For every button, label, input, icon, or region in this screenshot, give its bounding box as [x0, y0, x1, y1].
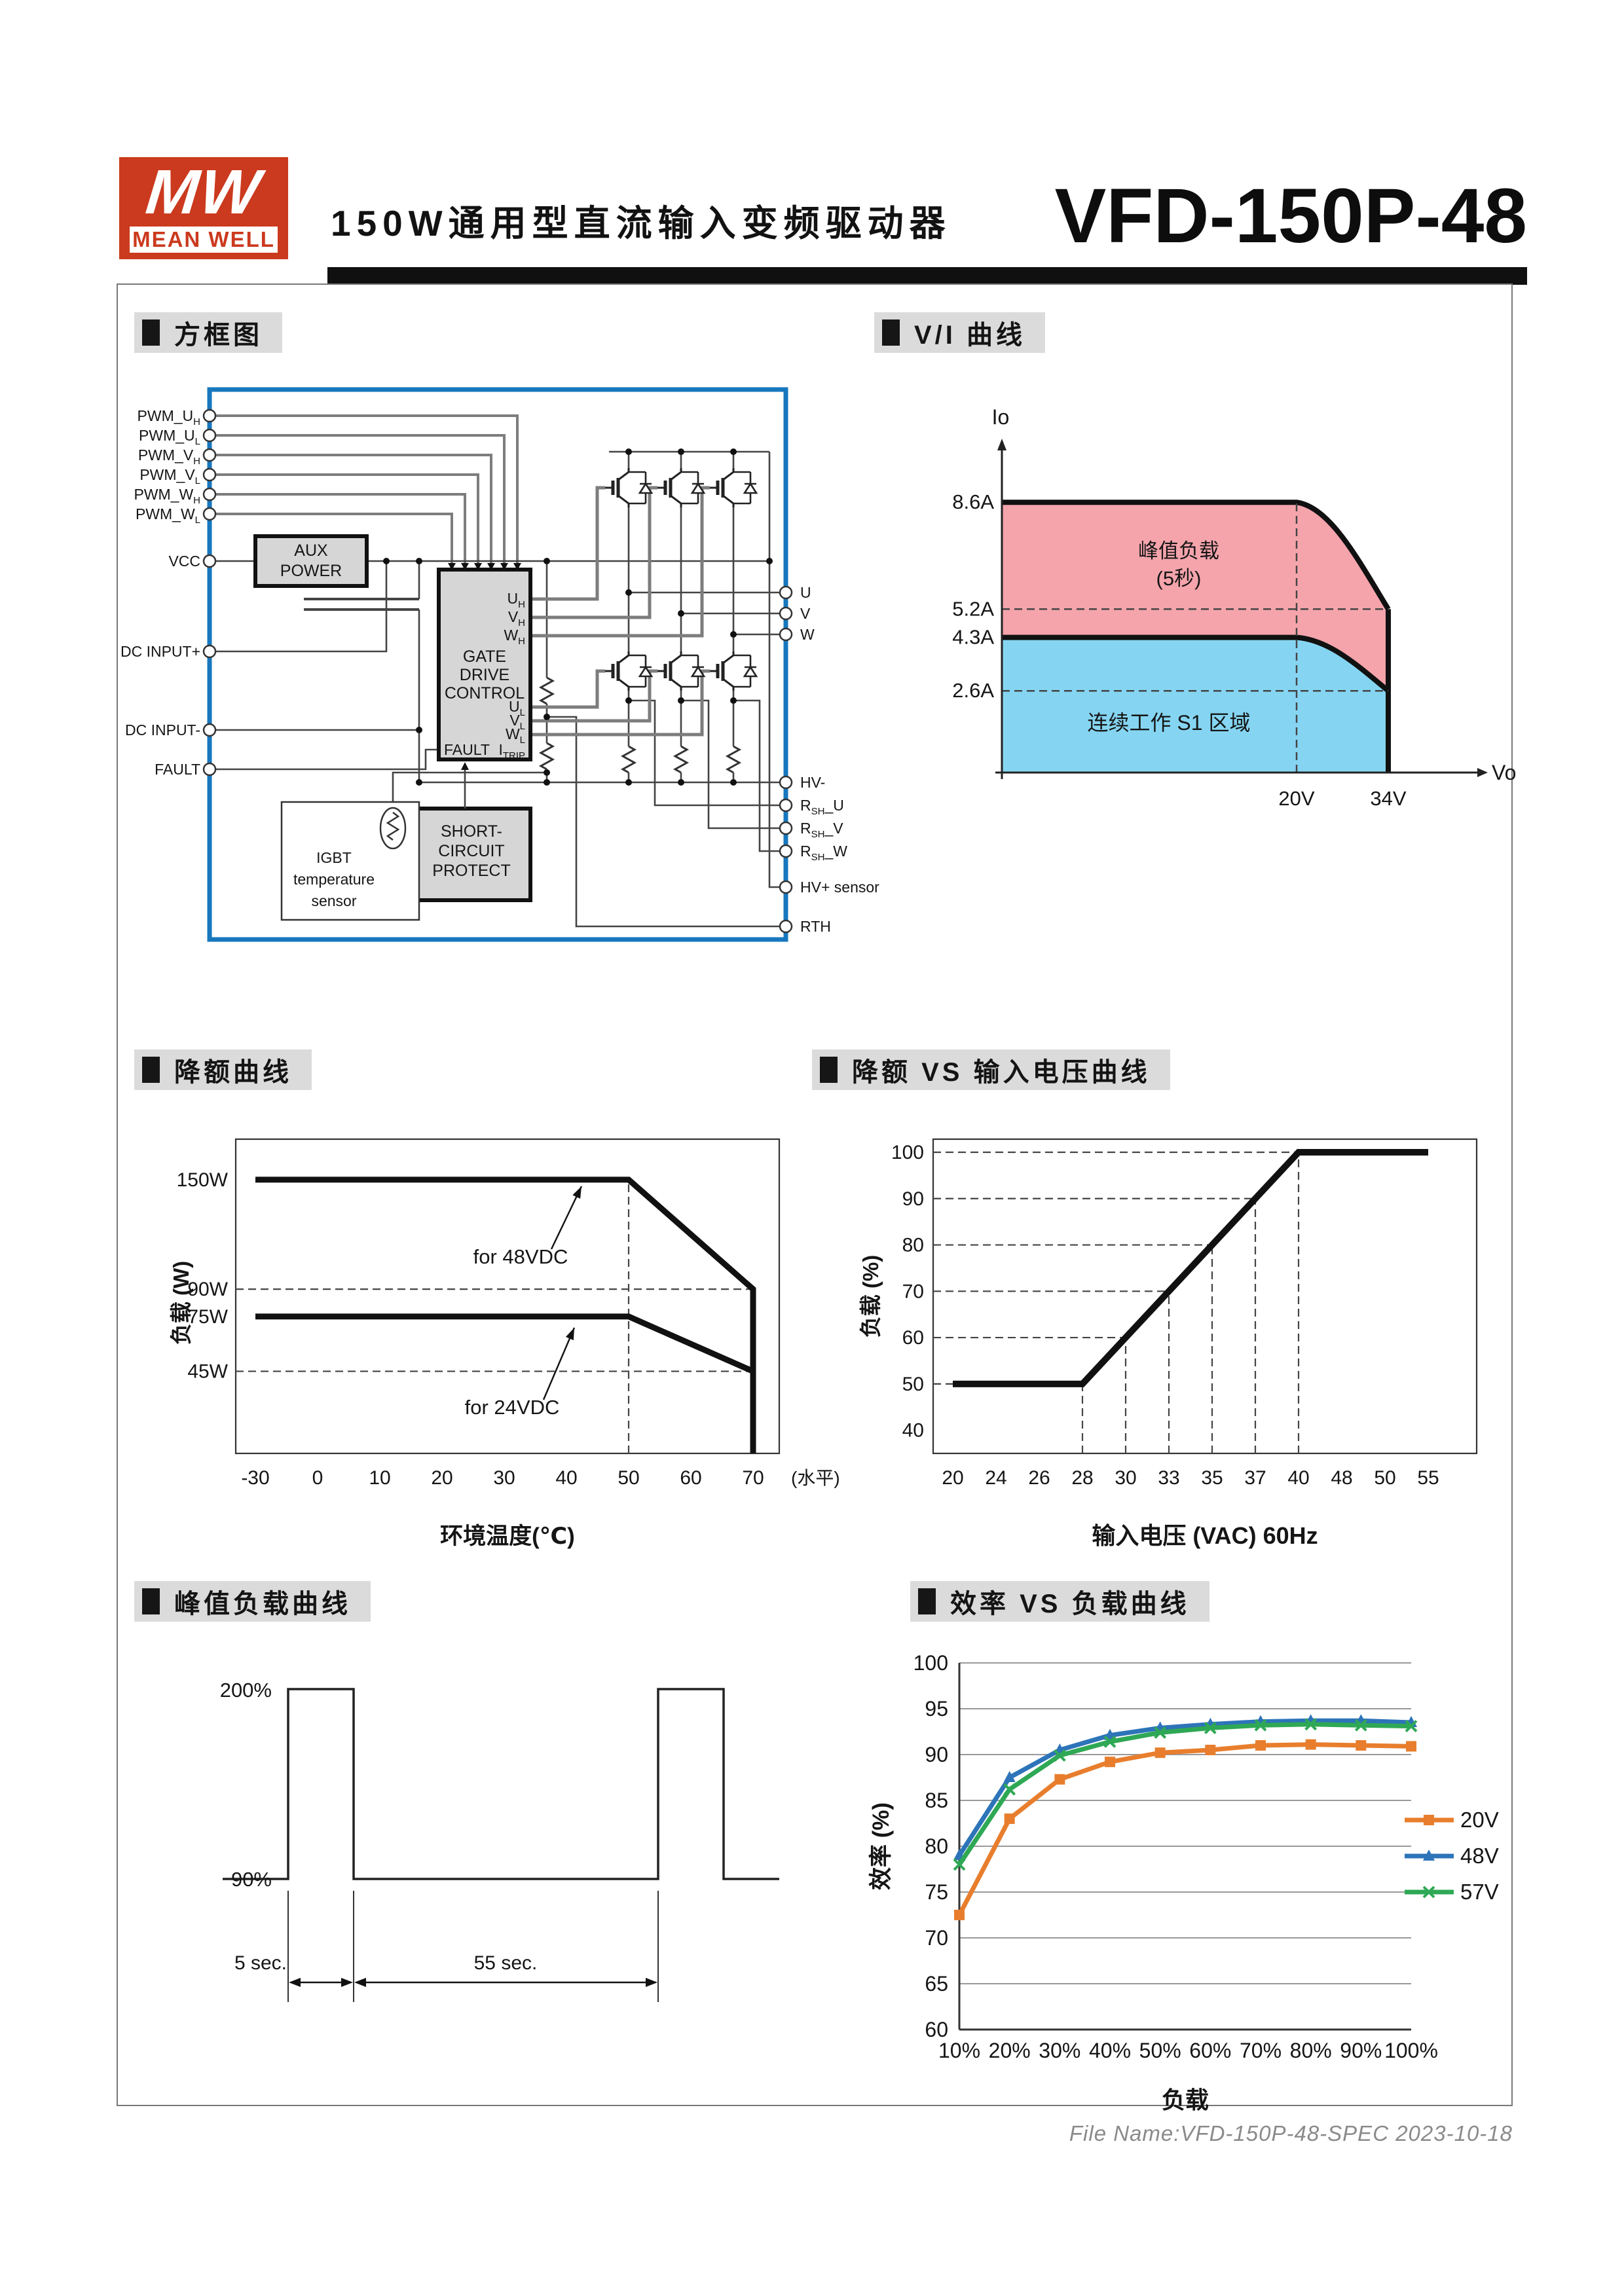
legend-label: 48V — [1460, 1844, 1499, 1868]
marker-square — [954, 1910, 965, 1920]
x-tick-label: -30 — [241, 1467, 269, 1489]
y-tick-label: 80 — [902, 1235, 924, 1256]
section-header-peak-load: 峰值负载曲线 — [134, 1581, 371, 1622]
section-header-vi-curve: V/I 曲线 — [874, 312, 1045, 353]
dimension-arrowhead — [646, 1978, 657, 1987]
series-annotation: for 24VDC — [465, 1396, 560, 1419]
x-tick-label: 33 — [1158, 1467, 1179, 1489]
section-title: 降额 VS 输入电压曲线 — [852, 1051, 1151, 1089]
pin-rsh-u: RSH_U — [800, 797, 844, 817]
y-tick-label: 75 — [925, 1880, 948, 1904]
gate-label: DRIVE — [460, 666, 509, 684]
temp-label: sensor — [311, 892, 356, 909]
x-tick-label: 60 — [680, 1467, 701, 1489]
series-line-48V — [959, 1721, 1411, 1855]
y-tick-label: 70 — [925, 1926, 948, 1950]
peak-load-chart: 200%90%5 sec.55 sec. — [151, 1637, 805, 2069]
x-tick-label: 10 — [369, 1467, 390, 1489]
x-tick-label: 20 — [431, 1467, 452, 1489]
y-tick-label: 80 — [925, 1834, 948, 1858]
marker-square — [1005, 1813, 1015, 1824]
logo-text: MEAN WELL — [132, 227, 275, 252]
annotation-arrowhead — [566, 1328, 574, 1340]
y-axis-title: 负载 (%) — [858, 1255, 883, 1338]
x-tick-label: 30 — [493, 1467, 515, 1489]
section-header-efficiency: 效率 VS 负载曲线 — [910, 1581, 1209, 1622]
shunt-resistor-w — [728, 746, 739, 773]
section-square-icon — [918, 1588, 936, 1614]
y-tick-label: 5.2A — [952, 597, 994, 620]
section-title: 降额曲线 — [174, 1051, 292, 1089]
x-axis-title: 输入电压 (VAC) 60Hz — [1092, 1522, 1318, 1549]
x-tick-label: 50% — [1139, 2039, 1181, 2062]
divider-resistor-2 — [541, 743, 553, 769]
marker-square — [1406, 1741, 1416, 1751]
gate-pin-fault: FAULT — [444, 741, 490, 758]
x-axis-title: 环境温度(℃) — [440, 1523, 575, 1549]
pin-pwm-vl: PWM_VL — [139, 466, 200, 486]
pin-w: W — [800, 626, 815, 643]
y-tick-label: 4.3A — [952, 626, 994, 649]
x-tick-label: 55 — [1417, 1467, 1439, 1489]
page-title: 150W通用型直流输入变频驱动器 — [331, 194, 951, 246]
x-tick-label: 37 — [1244, 1467, 1266, 1489]
gate-label: GATE — [463, 647, 506, 666]
rest-duration-label: 55 sec. — [474, 1952, 538, 1974]
x-axis-arrowhead — [1477, 768, 1488, 777]
pin-pwm-ul: PWM_UL — [139, 427, 200, 447]
legend-label: 57V — [1460, 1880, 1499, 1904]
x-tick-label: 40 — [555, 1467, 577, 1489]
x-tick-label: 35 — [1201, 1467, 1223, 1489]
legend-label: 20V — [1460, 1808, 1499, 1832]
section-square-icon — [820, 1057, 838, 1083]
annotation-arrowhead — [572, 1186, 581, 1199]
y-axis-title: 负载 (W) — [169, 1261, 193, 1345]
x-tick-label: 30 — [1115, 1467, 1136, 1489]
series-line-1 — [255, 1317, 753, 1372]
y-tick-label: 60 — [902, 1327, 924, 1349]
datasheet-page: MW MEAN WELL 150W通用型直流输入变频驱动器 VFD-150P-4… — [0, 0, 1624, 2296]
plot-border — [933, 1139, 1477, 1453]
marker-square — [1356, 1740, 1366, 1751]
pin-hv-minus: HV- — [800, 774, 825, 791]
section-square-icon — [142, 319, 160, 346]
x-tick-label: 70% — [1240, 2039, 1282, 2062]
x-tick-label: 50 — [1374, 1467, 1395, 1489]
x-tick-label: 20% — [989, 2039, 1031, 2062]
marker-square — [1155, 1747, 1166, 1758]
igbt-v-low — [657, 651, 704, 691]
y-tick-label: 70 — [902, 1281, 924, 1302]
meanwell-logo: MW MEAN WELL — [119, 157, 288, 259]
x-tick-label: 90% — [1340, 2039, 1382, 2062]
section-title: V/I 曲线 — [914, 314, 1025, 352]
x-axis-title: Vo — [1492, 761, 1516, 784]
x-tick-label: 0 — [312, 1467, 323, 1489]
model-number: VFD-150P-48 — [1055, 172, 1527, 261]
pin-fault: FAULT — [155, 761, 200, 778]
section-square-icon — [882, 319, 900, 346]
pin-pwm-wh: PWM_WH — [134, 486, 200, 506]
x-tick-label: 26 — [1028, 1467, 1050, 1489]
y-tick-label: 95 — [925, 1697, 948, 1721]
igbt-u-high — [605, 468, 652, 507]
pin-rsh-v: RSH_V — [800, 820, 843, 840]
section-header-derating: 降额曲线 — [134, 1049, 312, 1090]
pulse-duration-label: 5 sec. — [234, 1952, 287, 1974]
igbt-w-high — [710, 468, 756, 507]
pin-rsh-w: RSH_W — [800, 843, 847, 863]
x-axis-title: 负载 — [1162, 2086, 1209, 2113]
y-tick-label: 50 — [902, 1374, 924, 1395]
dimension-arrowhead — [289, 1978, 301, 1987]
pin-rth: RTH — [800, 918, 831, 935]
aux-label: AUX — [294, 541, 328, 560]
pin-dc-input-minus: DC INPUT- — [125, 721, 200, 738]
high-level-label: 200% — [220, 1679, 272, 1702]
mw-logo-icon: MW — [116, 158, 292, 227]
y-tick-label: 150W — [177, 1169, 229, 1191]
igbt-v-high — [657, 468, 704, 507]
igbt-u-low — [605, 651, 652, 691]
y-tick-label: 40 — [902, 1420, 924, 1442]
region-label: 峰值负载 — [1138, 539, 1219, 562]
x-tick-label: 50 — [618, 1467, 639, 1489]
x-axis-suffix: (水平) — [791, 1468, 840, 1488]
low-level-label: 90% — [231, 1868, 272, 1891]
divider-resistor-1 — [541, 678, 553, 704]
section-title: 方框图 — [174, 314, 263, 352]
y-tick-label: 45W — [187, 1361, 228, 1383]
y-axis-title: 效率 (%) — [868, 1802, 894, 1890]
derating-vs-input-chart: 405060708090100202426283033353740485055负… — [841, 1106, 1509, 1584]
x-tick-label: 40 — [1287, 1467, 1309, 1489]
efficiency-chart: 100959085807570656010%20%30%40%50%60%70%… — [841, 1624, 1509, 2128]
igbt-w-low — [710, 651, 756, 691]
pin-pwm-vh: PWM_VH — [138, 446, 200, 467]
header-divider-bar — [327, 267, 1527, 285]
shunt-resistor-v — [675, 746, 687, 773]
dimension-arrowhead — [354, 1978, 366, 1987]
marker-square — [1424, 1815, 1434, 1825]
y-tick-label: 2.6A — [952, 679, 994, 702]
pin-u: U — [800, 584, 811, 601]
pin-pwm-wl: PWM_WL — [136, 505, 200, 526]
section-square-icon — [142, 1057, 160, 1083]
y-tick-label: 85 — [925, 1789, 948, 1812]
scp-label: PROTECT — [432, 862, 510, 880]
region-label: 连续工作 S1 区域 — [1088, 711, 1251, 735]
section-square-icon — [142, 1588, 160, 1614]
y-axis-title: Io — [992, 405, 1010, 429]
load-limit-line — [953, 1152, 1428, 1384]
scp-label: CIRCUIT — [438, 842, 504, 860]
temp-label: IGBT — [316, 849, 352, 866]
region-label: (5秒) — [1156, 567, 1202, 590]
x-tick-label: 34V — [1370, 787, 1406, 810]
section-title: 峰值负载曲线 — [174, 1582, 351, 1620]
y-tick-label: 65 — [925, 1972, 948, 1995]
vi-curve-chart: IoVo8.6A5.2A4.3A2.6A20V34V峰值负载(5秒)连续工作 S… — [904, 386, 1506, 851]
x-tick-label: 10% — [938, 2039, 980, 2062]
x-tick-label: 28 — [1071, 1467, 1093, 1489]
derating-chart: 150W90W75W45W-30010203040506070(水平)for 4… — [151, 1106, 805, 1584]
footer-file-info: File Name:VFD-150P-48-SPEC 2023-10-18 — [1069, 2121, 1513, 2146]
y-tick-label: 90W — [187, 1279, 228, 1300]
pulse-waveform — [223, 1689, 779, 1879]
pin-dc-input-plus: DC INPUT+ — [120, 643, 200, 660]
pin-hv-plus-sensor: HV+ sensor — [800, 879, 879, 896]
section-header-block-diagram: 方框图 — [134, 312, 282, 353]
pin-v: V — [800, 605, 811, 622]
y-tick-label: 100 — [891, 1142, 924, 1163]
x-tick-label: 100% — [1384, 2039, 1438, 2062]
y-tick-label: 90 — [925, 1743, 948, 1766]
y-tick-label: 8.6A — [952, 490, 994, 513]
itrip-arrowhead — [461, 762, 469, 770]
continuous-region — [1002, 638, 1388, 773]
marker-square — [1205, 1745, 1215, 1755]
x-tick-label: 30% — [1039, 2039, 1080, 2062]
marker-square — [1255, 1740, 1266, 1751]
x-tick-label: 20 — [942, 1467, 963, 1489]
logo-band: MEAN WELL — [130, 227, 278, 253]
dimension-arrowhead — [341, 1978, 353, 1987]
y-tick-label: 60 — [925, 2018, 948, 2041]
temp-label: temperature — [293, 871, 375, 888]
y-tick-label: 100 — [913, 1651, 948, 1675]
x-tick-label: 40% — [1089, 2039, 1131, 2062]
scp-label: SHORT- — [441, 822, 502, 841]
pin-vcc: VCC — [168, 553, 200, 570]
marker-square — [1306, 1740, 1316, 1750]
marker-square — [1054, 1774, 1065, 1785]
series-annotation: for 48VDC — [473, 1245, 568, 1268]
x-tick-label: 20V — [1278, 787, 1314, 810]
x-tick-label: 48 — [1331, 1467, 1352, 1489]
shunt-resistor-u — [623, 746, 635, 773]
section-title: 效率 VS 负载曲线 — [950, 1582, 1190, 1620]
marker-square — [1105, 1757, 1115, 1767]
x-tick-label: 24 — [985, 1467, 1006, 1489]
section-header-derating-vs-input: 降额 VS 输入电压曲线 — [812, 1049, 1170, 1090]
y-axis-arrowhead — [997, 439, 1006, 450]
x-tick-label: 80% — [1290, 2039, 1332, 2062]
block-diagram: AUX POWER UH VH WH GATE DRIVE CONTROL UL… — [111, 376, 917, 966]
y-tick-label: 90 — [902, 1188, 924, 1210]
x-tick-label: 60% — [1189, 2039, 1231, 2062]
y-tick-label: 75W — [187, 1306, 228, 1328]
thermistor-icon — [380, 808, 405, 848]
x-tick-label: 70 — [742, 1467, 764, 1489]
pin-pwm-uh: PWM_UH — [138, 407, 200, 428]
aux-label: POWER — [280, 562, 342, 580]
